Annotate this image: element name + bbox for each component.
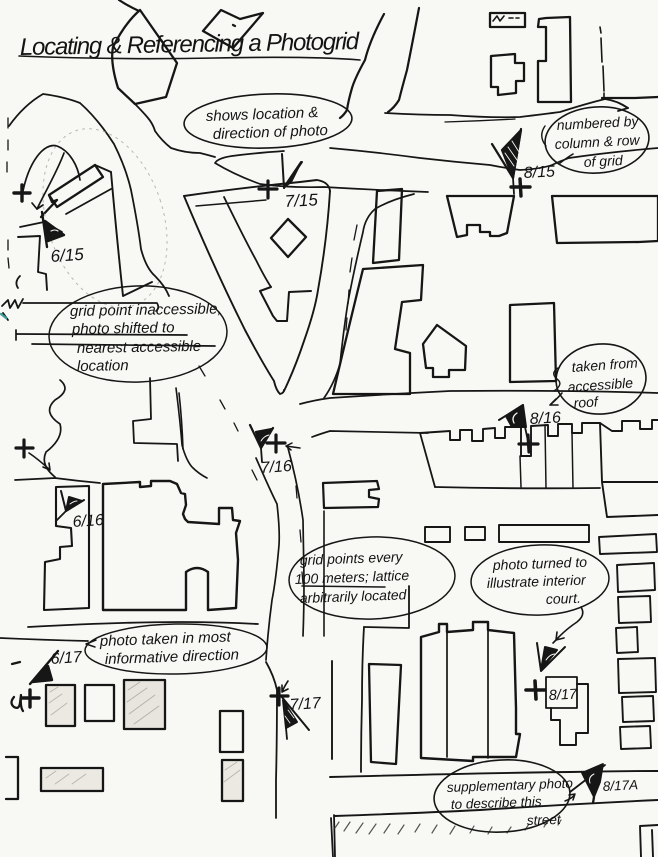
- svg-text:nearest accessible: nearest accessible: [77, 338, 202, 357]
- svg-text:8/15: 8/15: [523, 163, 555, 182]
- svg-text:7/16: 7/16: [260, 458, 292, 477]
- svg-text:6/15: 6/15: [50, 245, 85, 266]
- svg-text:to describe this: to describe this: [451, 794, 543, 812]
- svg-text:of grid: of grid: [583, 152, 624, 170]
- svg-text:location: location: [77, 357, 129, 375]
- svg-text:6/17: 6/17: [50, 649, 83, 668]
- svg-text:8/17A: 8/17A: [602, 777, 638, 794]
- svg-text:7/15: 7/15: [284, 190, 319, 211]
- svg-text:8/17: 8/17: [548, 686, 578, 704]
- svg-text:court.: court.: [546, 590, 582, 607]
- svg-text:roof: roof: [573, 393, 600, 411]
- svg-text:photo turned to: photo turned to: [492, 554, 588, 573]
- svg-text:street: street: [527, 812, 563, 828]
